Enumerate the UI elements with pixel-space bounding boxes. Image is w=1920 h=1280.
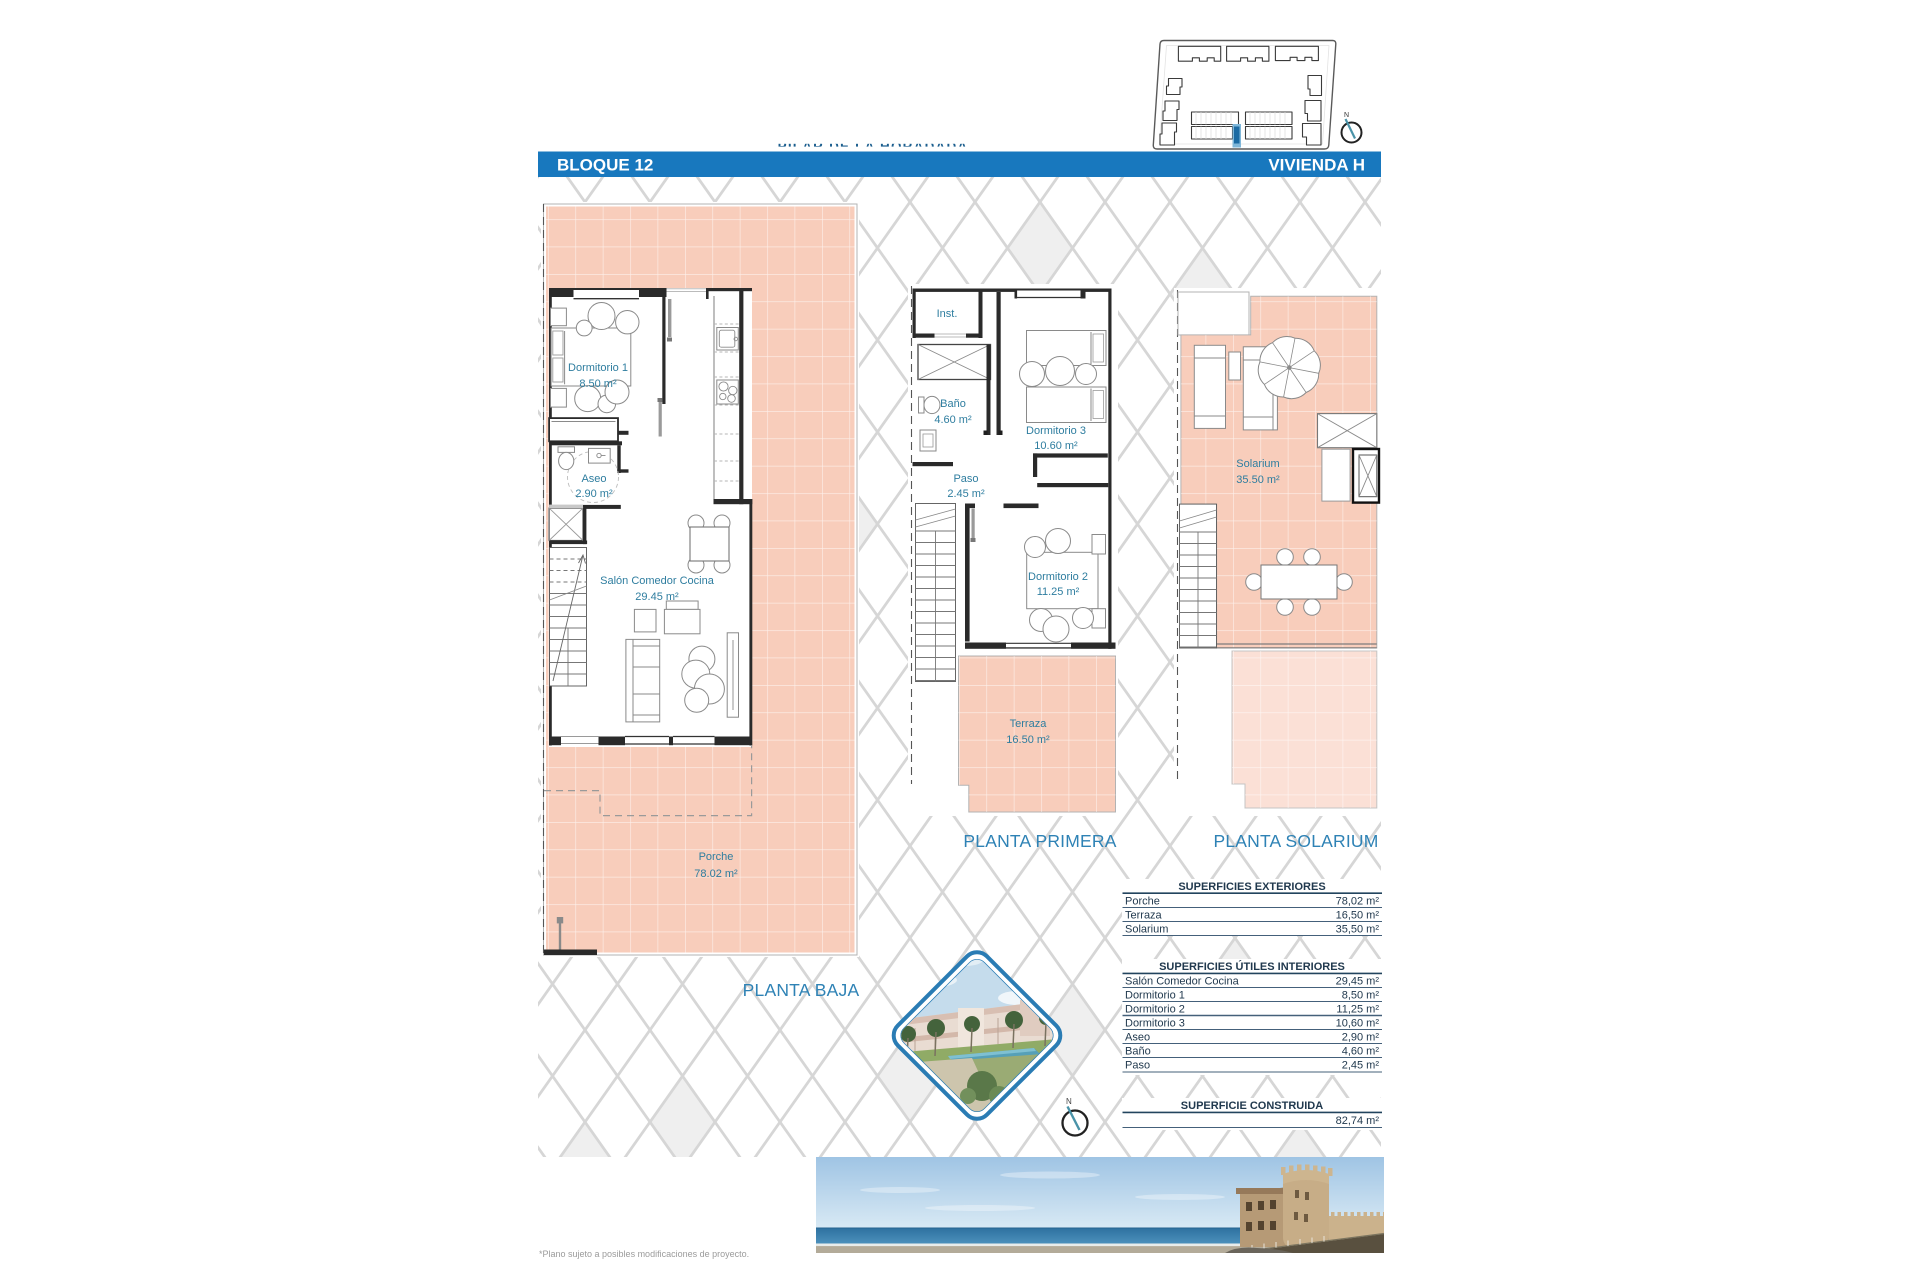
svg-text:Inst.: Inst. (937, 308, 958, 320)
svg-text:16,50 m²: 16,50 m² (1336, 910, 1380, 922)
svg-text:29,45 m²: 29,45 m² (1336, 976, 1380, 988)
svg-text:Dormitorio 1: Dormitorio 1 (568, 362, 628, 374)
svg-text:Paso: Paso (953, 473, 978, 485)
svg-text:16.50 m²: 16.50 m² (1006, 734, 1050, 746)
svg-text:N: N (1344, 112, 1349, 119)
svg-text:4,60 m²: 4,60 m² (1342, 1046, 1380, 1058)
svg-text:Paso: Paso (1125, 1060, 1150, 1072)
svg-text:Baño: Baño (940, 398, 966, 410)
svg-text:SUPERFICIE CONSTRUIDA: SUPERFICIE CONSTRUIDA (1181, 1100, 1323, 1112)
svg-text:11.25 m²: 11.25 m² (1037, 586, 1080, 598)
svg-text:Salón Comedor Cocina: Salón Comedor Cocina (1125, 976, 1240, 988)
svg-text:PLANTA BAJA: PLANTA BAJA (743, 980, 860, 1000)
svg-text:Dormitorio 2: Dormitorio 2 (1125, 1004, 1185, 1016)
svg-text:Dormitorio 1: Dormitorio 1 (1125, 990, 1185, 1002)
svg-text:4.60 m²: 4.60 m² (934, 414, 972, 426)
svg-text:PLANTA SOLARIUM: PLANTA SOLARIUM (1213, 831, 1378, 851)
svg-text:Dormitorio 2: Dormitorio 2 (1028, 571, 1088, 583)
svg-text:78,02 m²: 78,02 m² (1336, 896, 1380, 908)
svg-text:8,50 m²: 8,50 m² (1342, 990, 1380, 1002)
svg-text:10.60 m²: 10.60 m² (1034, 440, 1078, 452)
svg-text:82,74 m²: 82,74 m² (1336, 1115, 1380, 1127)
svg-text:Solarium: Solarium (1236, 458, 1279, 470)
svg-text:10,60 m²: 10,60 m² (1336, 1018, 1380, 1030)
svg-text:Porche: Porche (699, 851, 734, 863)
svg-text:Terraza: Terraza (1125, 910, 1163, 922)
svg-text:SUPERFICIES EXTERIORES: SUPERFICIES EXTERIORES (1178, 881, 1325, 893)
svg-text:Dormitorio 3: Dormitorio 3 (1125, 1018, 1185, 1030)
svg-text:VIVIENDA H: VIVIENDA H (1268, 156, 1365, 175)
svg-text:Salón Comedor Cocina: Salón Comedor Cocina (600, 575, 715, 587)
svg-text:N: N (1066, 1097, 1072, 1106)
svg-text:BLOQUE 12: BLOQUE 12 (557, 156, 653, 175)
svg-text:2,90 m²: 2,90 m² (1342, 1032, 1380, 1044)
svg-text:2,45 m²: 2,45 m² (1342, 1060, 1380, 1072)
svg-text:SUPERFICIES ÚTILES INTERIORES: SUPERFICIES ÚTILES INTERIORES (1159, 960, 1345, 973)
svg-text:PLANTA PRIMERA: PLANTA PRIMERA (963, 831, 1116, 851)
svg-text:Porche: Porche (1125, 896, 1160, 908)
svg-text:35,50 m²: 35,50 m² (1336, 924, 1380, 936)
svg-text:8.50 m²: 8.50 m² (579, 378, 617, 390)
svg-text:78.02 m²: 78.02 m² (694, 868, 738, 880)
svg-text:2.45 m²: 2.45 m² (947, 488, 985, 500)
svg-text:Dormitorio 3: Dormitorio 3 (1026, 425, 1086, 437)
svg-text:35.50 m²: 35.50 m² (1236, 474, 1280, 486)
svg-text:Aseo: Aseo (1125, 1032, 1150, 1044)
svg-text:2.90 m²: 2.90 m² (575, 488, 613, 500)
svg-text:11,25 m²: 11,25 m² (1336, 1004, 1379, 1016)
svg-text:Solarium: Solarium (1125, 924, 1168, 936)
svg-text:Baño: Baño (1125, 1046, 1151, 1058)
svg-text:Aseo: Aseo (581, 473, 606, 485)
svg-text:*Plano sujeto a posibles modif: *Plano sujeto a posibles modificaciones … (539, 1249, 749, 1259)
svg-text:Terraza: Terraza (1010, 718, 1048, 730)
